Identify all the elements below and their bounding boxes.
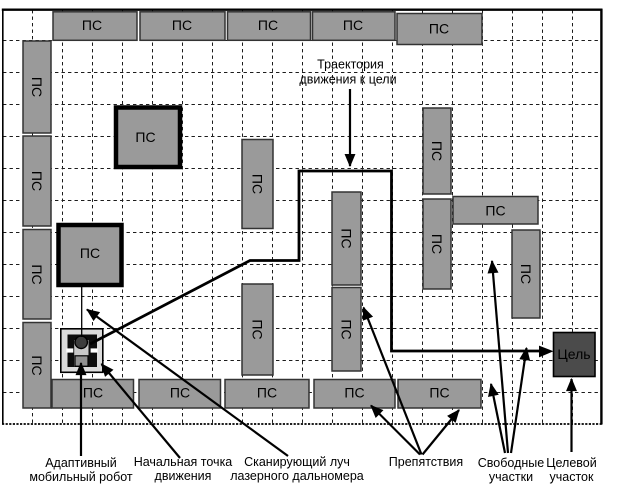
svg-text:ПС: ПС: [429, 385, 449, 401]
svg-text:ПС: ПС: [518, 264, 534, 284]
svg-text:Сканирующий луч: Сканирующий луч: [244, 455, 350, 469]
svg-text:ПС: ПС: [339, 228, 355, 248]
svg-text:ПС: ПС: [429, 141, 445, 161]
svg-text:ПС: ПС: [170, 385, 190, 401]
svg-text:движения к цели: движения к цели: [299, 73, 396, 87]
svg-text:ПС: ПС: [83, 385, 103, 401]
svg-text:ПС: ПС: [250, 174, 266, 194]
svg-text:ПС: ПС: [485, 203, 505, 219]
svg-text:ПС: ПС: [429, 234, 445, 254]
svg-text:ПС: ПС: [250, 319, 266, 339]
svg-text:ПС: ПС: [343, 17, 363, 33]
svg-text:участки: участки: [489, 470, 533, 484]
svg-text:ПС: ПС: [29, 355, 45, 375]
svg-text:ПС: ПС: [29, 264, 45, 284]
svg-text:ПС: ПС: [258, 17, 278, 33]
svg-text:участок: участок: [550, 470, 595, 484]
svg-text:Препятствия: Препятствия: [389, 455, 463, 469]
svg-text:ПС: ПС: [257, 385, 277, 401]
svg-text:ПС: ПС: [135, 129, 155, 145]
svg-text:ПС: ПС: [344, 385, 364, 401]
svg-text:лазерного дальномера: лазерного дальномера: [230, 469, 364, 483]
svg-text:ПС: ПС: [80, 245, 100, 261]
svg-text:Траектория: Траектория: [317, 58, 384, 72]
svg-text:Адаптивный: Адаптивный: [45, 456, 117, 470]
svg-text:ПС: ПС: [29, 77, 45, 97]
svg-text:ПС: ПС: [82, 17, 102, 33]
svg-text:ПС: ПС: [29, 171, 45, 191]
svg-text:Начальная точка: Начальная точка: [134, 455, 233, 469]
svg-text:ПС: ПС: [429, 21, 449, 37]
svg-text:ПС: ПС: [172, 17, 192, 33]
svg-text:ПС: ПС: [339, 319, 355, 339]
svg-text:Целевой: Целевой: [546, 456, 596, 470]
svg-text:движения: движения: [155, 469, 212, 483]
svg-text:Цель: Цель: [557, 346, 590, 362]
svg-text:мобильный робот: мобильный робот: [29, 470, 133, 484]
svg-text:Свободные: Свободные: [478, 456, 544, 470]
